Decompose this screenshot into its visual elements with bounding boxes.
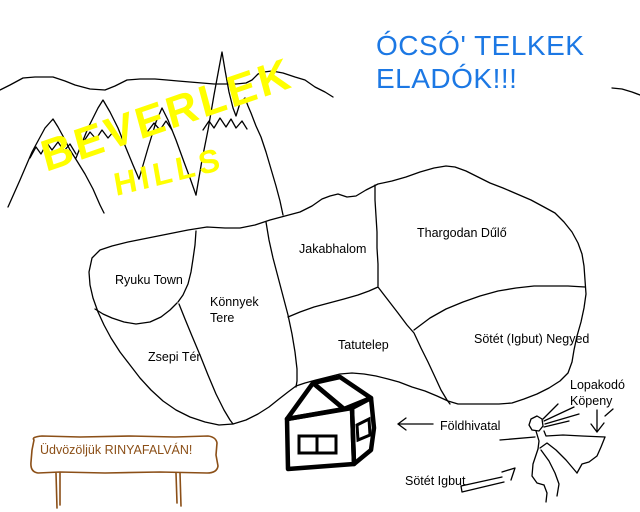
village-map-outline <box>89 166 586 425</box>
figure-hair-stream <box>543 404 558 419</box>
region-label-konnyek-tere-line2: Tere <box>210 311 234 325</box>
figure-hair-stream <box>544 421 569 427</box>
region-label-jakabhalom: Jakabhalom <box>299 242 366 256</box>
headline-line2: ELADÓK!!! <box>376 63 517 94</box>
region-label-sotet-igbut-negyed: Sötét (Igbut) Negyed <box>474 332 589 346</box>
sign-leg <box>176 473 177 503</box>
figure-leg <box>544 485 547 502</box>
cloak-label-line1: Lopakodó <box>570 378 625 392</box>
horizon-right <box>612 88 640 95</box>
sign-leg <box>180 473 181 506</box>
region-label-ryuku-town: Ryuku Town <box>115 273 183 287</box>
region-label-thargodan-dulo: Thargodan Dűlő <box>417 226 507 240</box>
sign-leg <box>56 473 57 508</box>
figure-head <box>529 416 543 431</box>
welcome-sign: Üdvözöljük RINYAFALVÁN! <box>31 436 218 508</box>
sketched-arrow-head <box>502 468 515 480</box>
headline: ÓCSÓ' TELKEK ELADÓK!!! <box>376 30 584 94</box>
figure-leg <box>532 449 544 485</box>
headline-line1: ÓCSÓ' TELKEK <box>376 30 584 61</box>
land-office-label: Földhivatal <box>440 419 500 433</box>
cloak-lower-edge <box>540 443 577 473</box>
house-drawing <box>287 377 374 469</box>
cloak-top-edge <box>544 431 605 437</box>
hills-title: BEVERLEK HILLS <box>36 48 298 202</box>
paint-map-canvas: BEVERLEK HILLS ÓCSÓ' TELKEK ELADÓK!!! Ry… <box>0 0 640 512</box>
region-label-zsepi-ter: Zsepi Tér <box>148 350 201 364</box>
welcome-sign-text: Üdvözöljük RINYAFALVÁN! <box>40 442 192 457</box>
dark-igbut-label: Sötét Igbut <box>405 474 466 488</box>
region-label-tatutelep: Tatutelep <box>338 338 389 352</box>
land-office-pointer: Földhivatal <box>398 418 500 433</box>
house-side-window <box>357 419 370 440</box>
horizon-lines <box>0 71 640 97</box>
sketched-arrow-shaft <box>461 482 504 492</box>
sketched-arrow-shaft <box>461 477 502 486</box>
cloak-jagged-edge <box>577 437 605 473</box>
dark-igbut-pointer: Sötét Igbut <box>405 468 515 492</box>
region-label-konnyek-tere-line1: Könnyek <box>210 295 259 309</box>
cloak-tick <box>605 409 613 416</box>
figure-arm <box>500 437 535 440</box>
figure-body <box>536 431 539 449</box>
figure-leg <box>541 450 559 496</box>
cloak-label-line2: Köpeny <box>570 394 613 408</box>
map-drawing: BEVERLEK HILLS ÓCSÓ' TELKEK ELADÓK!!! Ry… <box>0 0 640 512</box>
